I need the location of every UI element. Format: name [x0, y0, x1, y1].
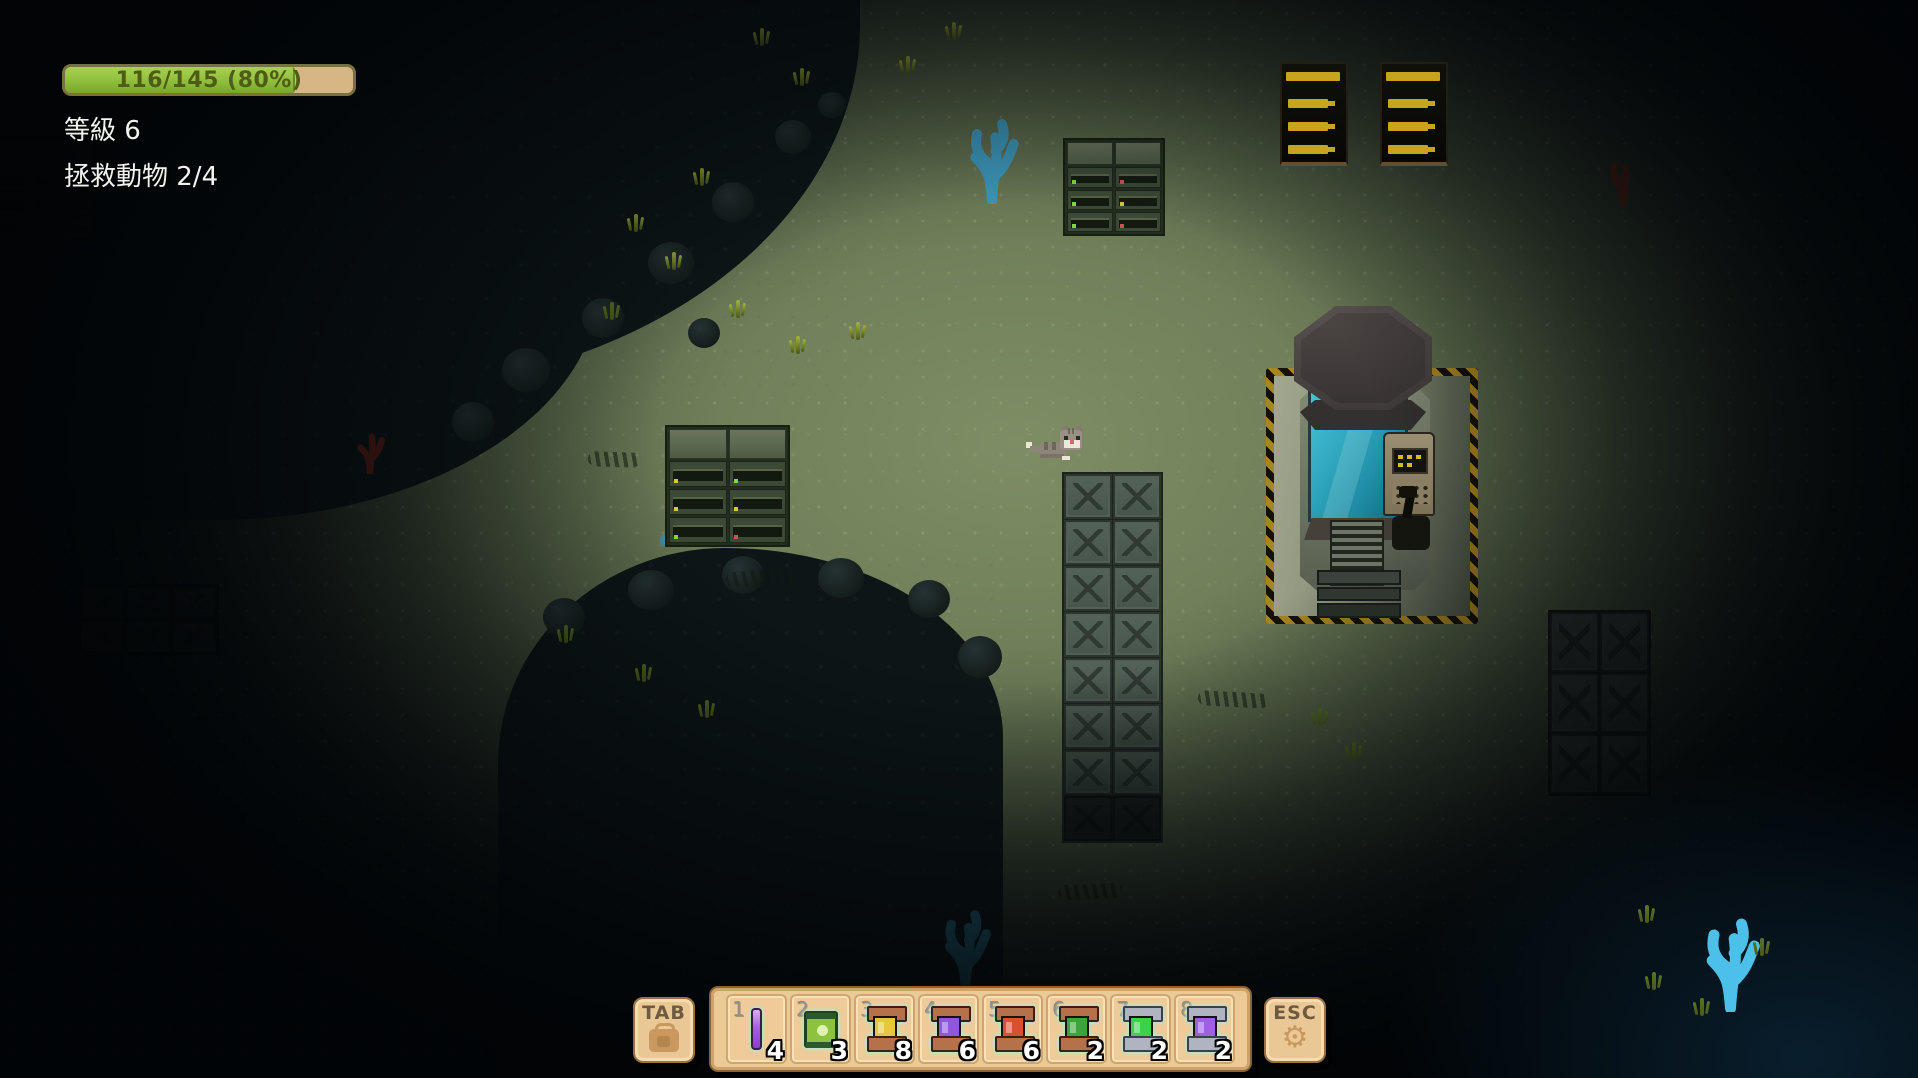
pod-steps	[1317, 570, 1401, 618]
crate-tile[interactable]	[1113, 750, 1161, 795]
grass-tuft	[1652, 972, 1656, 990]
crate-stack-center[interactable]	[1062, 472, 1163, 843]
pod-lever[interactable]	[1392, 516, 1430, 550]
crate-tile[interactable]	[172, 586, 217, 619]
slot-count: 3	[831, 1036, 848, 1065]
coral-plant	[928, 896, 1003, 991]
tab-key-label: TAB	[642, 1002, 686, 1024]
crate-tile[interactable]	[1600, 673, 1649, 733]
crate-tile[interactable]	[80, 586, 125, 619]
objective-label: 拯救動物 2/4	[64, 156, 218, 193]
crate-tile[interactable]	[1113, 612, 1161, 657]
crate-stack-right[interactable]	[1548, 610, 1651, 796]
debris-decal	[588, 451, 640, 468]
rack-shelf-top	[1067, 142, 1161, 165]
grass-tuft	[760, 28, 764, 46]
crate-tile[interactable]	[1113, 520, 1161, 565]
animal-pod-machine[interactable]	[1264, 304, 1496, 656]
debris-decal	[1058, 883, 1122, 900]
gear-icon: ⚙	[1282, 1023, 1309, 1053]
crate-tile[interactable]	[1064, 520, 1112, 565]
slot-count: 2	[1087, 1036, 1104, 1065]
hotbar-slot-3[interactable]: 3 8	[854, 994, 915, 1064]
grass-tuft	[856, 322, 860, 340]
red-coral-plant	[1600, 148, 1646, 206]
crate-tile[interactable]	[126, 586, 171, 619]
crate-tile[interactable]	[1113, 566, 1161, 611]
boulder	[958, 636, 1002, 678]
boulder	[688, 318, 720, 348]
crate-tile[interactable]	[172, 620, 217, 653]
hotbar-slot-4[interactable]: 4 6	[918, 994, 979, 1064]
crate-tile[interactable]	[1064, 796, 1112, 841]
health-bar-text: 116/145 (80%)	[65, 67, 353, 93]
glowing-coral-plant	[1688, 902, 1773, 1012]
grass-tuft	[705, 700, 709, 718]
game-screen: 116/145 (80%) 等級 6 拯救動物 2/4 TAB 1 4 2 3 …	[0, 0, 1918, 1078]
crate-tile[interactable]	[1550, 673, 1599, 733]
boulder	[818, 558, 864, 598]
grass-tuft	[736, 300, 740, 318]
console-screen	[1392, 448, 1428, 474]
boulder	[648, 242, 694, 284]
level-label: 等級 6	[64, 110, 141, 147]
rack-shelf-top	[669, 429, 786, 459]
crate-tile[interactable]	[1064, 750, 1112, 795]
tab-key-button[interactable]: TAB	[633, 997, 695, 1063]
crate-tile[interactable]	[1550, 612, 1599, 672]
boulder	[502, 348, 550, 392]
hotbar-panel: 1 4 2 3 3 8 4 6 5 6 6 2 7	[709, 986, 1252, 1072]
slot-count: 2	[1151, 1036, 1168, 1065]
grass-tuft	[634, 214, 638, 232]
grass-tuft	[906, 56, 910, 74]
yellow-vent-locker[interactable]	[1280, 62, 1348, 166]
slot-count: 6	[959, 1036, 976, 1065]
crate-tile[interactable]	[80, 620, 125, 653]
grass-tuft	[1760, 938, 1764, 956]
grass-tuft	[952, 22, 956, 40]
slot-count: 6	[1023, 1036, 1040, 1065]
yellow-vent-locker[interactable]	[1380, 62, 1448, 166]
rack-drawers	[669, 461, 786, 543]
crate-stack-left[interactable]	[78, 584, 219, 655]
crate-tile[interactable]	[1113, 704, 1161, 749]
hotbar-slot-6[interactable]: 6 2	[1046, 994, 1107, 1064]
boulder	[908, 580, 950, 618]
boulder	[775, 120, 811, 154]
health-bar: 116/145 (80%)	[62, 64, 356, 96]
boulder	[712, 182, 754, 222]
slot-count: 4	[767, 1036, 784, 1065]
crate-tile[interactable]	[1064, 474, 1112, 519]
grass-tuft	[610, 302, 614, 320]
crate-tile[interactable]	[1550, 734, 1599, 794]
grass-tuft	[1352, 742, 1356, 760]
crate-tile[interactable]	[1064, 704, 1112, 749]
coral-plant	[952, 104, 1032, 204]
crate-tile[interactable]	[1064, 566, 1112, 611]
boulder	[452, 402, 494, 442]
grass-tuft	[800, 68, 804, 86]
pod-lid[interactable]	[1294, 306, 1432, 410]
grass-tuft	[564, 625, 568, 643]
crate-tile[interactable]	[1113, 658, 1161, 703]
grass-tuft	[642, 664, 646, 682]
slot-count: 8	[895, 1036, 912, 1065]
crate-tile[interactable]	[126, 620, 171, 653]
storage-rack-top[interactable]	[1063, 138, 1165, 236]
crate-tile[interactable]	[1064, 658, 1112, 703]
rack-drawers	[1067, 167, 1161, 232]
cat-character[interactable]	[1026, 426, 1090, 468]
hotbar-slot-5[interactable]: 5 6	[982, 994, 1043, 1064]
slot-count: 2	[1215, 1036, 1232, 1065]
crate-tile[interactable]	[1064, 612, 1112, 657]
grass-tuft	[700, 168, 704, 186]
hotbar-slot-2[interactable]: 2 3	[790, 994, 851, 1064]
crate-tile[interactable]	[1600, 612, 1649, 672]
red-coral-plant	[348, 418, 392, 474]
hotbar-slot-1[interactable]: 1 4	[726, 994, 787, 1064]
crate-tile[interactable]	[1113, 474, 1161, 519]
boulder	[818, 92, 846, 118]
boulder	[628, 570, 674, 610]
grass-tuft	[1318, 708, 1322, 726]
grass-tuft	[672, 252, 676, 270]
grass-tuft	[1700, 998, 1704, 1016]
hotbar-slot-8[interactable]: 8 2	[1174, 994, 1235, 1064]
crate-tile[interactable]	[1600, 734, 1649, 794]
grass-tuft	[1645, 905, 1649, 923]
esc-key-button[interactable]: ESC ⚙	[1264, 997, 1326, 1063]
crate-tile[interactable]	[1113, 796, 1161, 841]
grass-tuft	[796, 336, 800, 354]
hotbar-slot-7[interactable]: 7 2	[1110, 994, 1171, 1064]
purple-crystal-rod-icon	[751, 1008, 762, 1050]
backpack-icon	[649, 1029, 679, 1052]
slot-number: 1	[732, 997, 745, 1021]
storage-rack-left[interactable]	[665, 425, 790, 547]
